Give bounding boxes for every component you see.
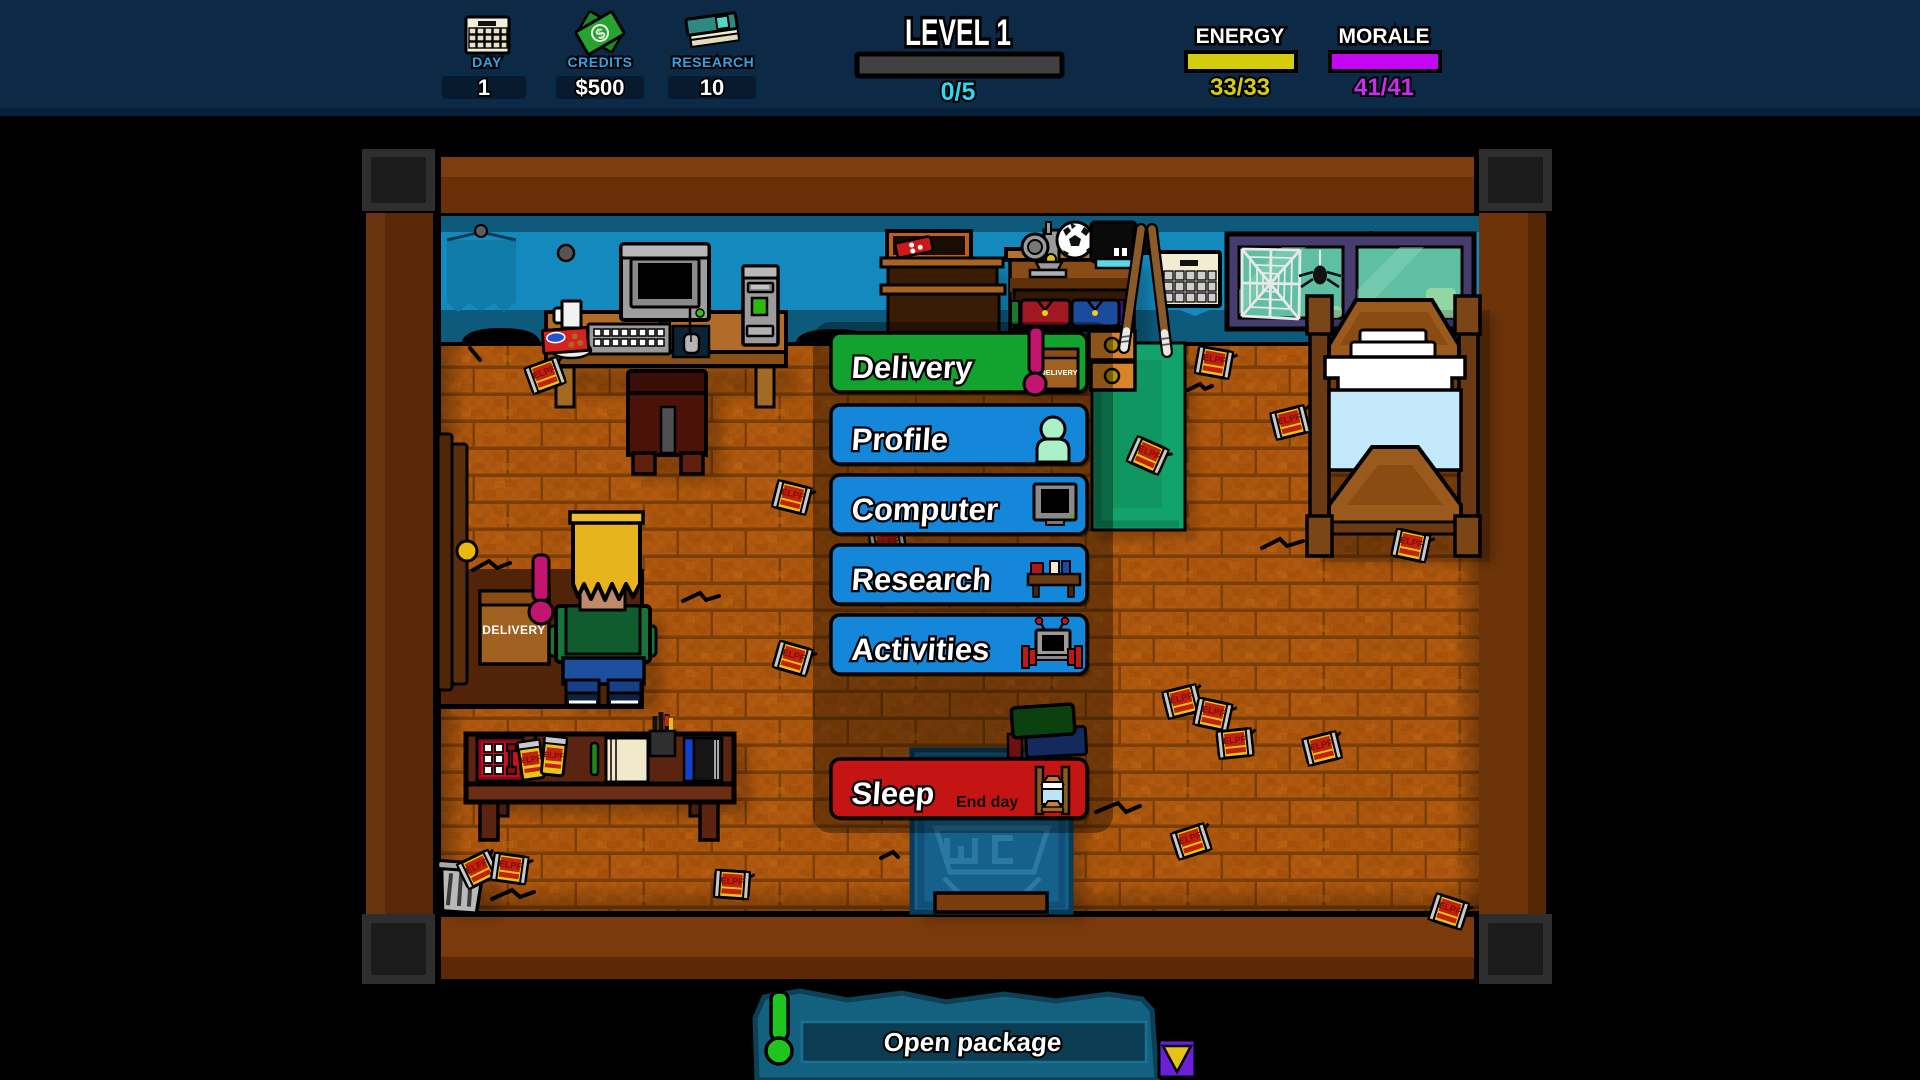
svg-text:0/5: 0/5 xyxy=(941,78,976,106)
svg-text:$500: $500 xyxy=(576,75,625,100)
svg-text:DAY: DAY xyxy=(472,54,502,70)
svg-text:CREDITS: CREDITS xyxy=(568,54,633,70)
svg-text:LEVEL 1: LEVEL 1 xyxy=(905,12,1011,53)
svg-text:DELIVERY: DELIVERY xyxy=(482,623,546,637)
svg-text:41/41: 41/41 xyxy=(1354,74,1414,101)
svg-text:Research: Research xyxy=(851,562,993,597)
svg-text:End day: End day xyxy=(956,794,1018,811)
svg-text:1: 1 xyxy=(478,75,490,100)
svg-text:MORALE: MORALE xyxy=(1339,25,1430,48)
svg-text:ENERGY: ENERGY xyxy=(1196,25,1285,48)
svg-text:RESEARCH: RESEARCH xyxy=(672,54,755,70)
svg-text:Delivery: Delivery xyxy=(851,350,975,385)
svg-text:DELIVERY: DELIVERY xyxy=(1040,368,1077,377)
svg-text:Profile: Profile xyxy=(851,422,950,457)
svg-text:Open package: Open package xyxy=(883,1027,1063,1057)
svg-text:Computer: Computer xyxy=(851,492,1000,527)
svg-text:Activities: Activities xyxy=(851,632,991,667)
svg-text:Sleep: Sleep xyxy=(851,776,936,811)
svg-text:33/33: 33/33 xyxy=(1210,74,1270,101)
svg-text:10: 10 xyxy=(700,75,724,100)
